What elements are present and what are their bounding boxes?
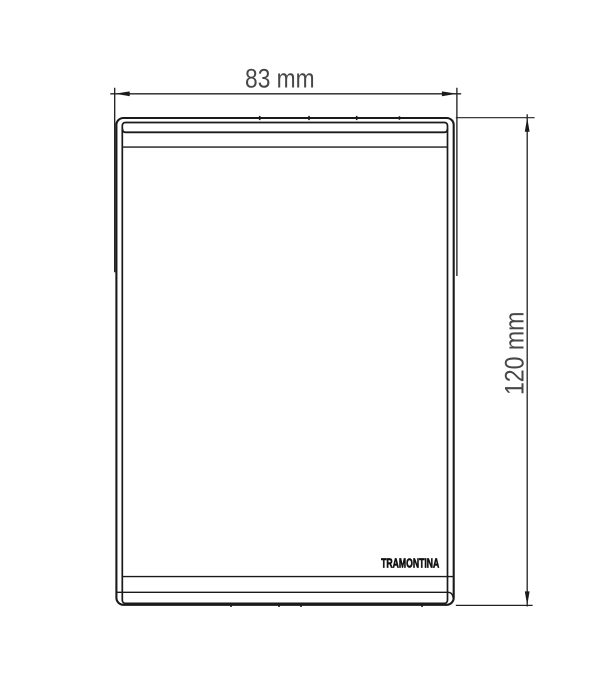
svg-text:TRAMONTINA: TRAMONTINA xyxy=(381,555,440,570)
svg-text:83 mm: 83 mm xyxy=(245,63,315,93)
svg-text:120 mm: 120 mm xyxy=(499,312,529,396)
